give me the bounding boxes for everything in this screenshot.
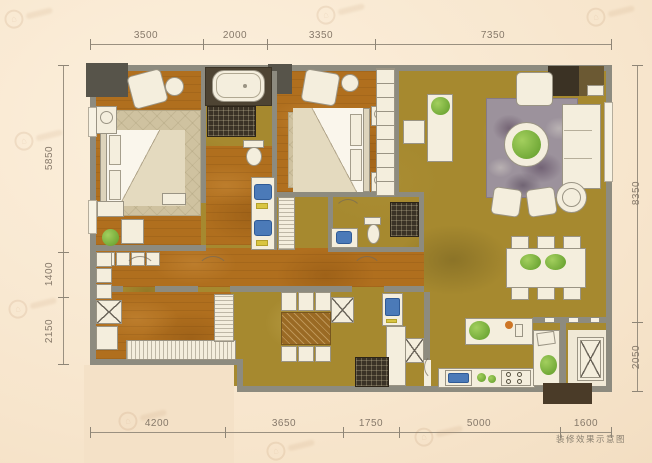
dim-tick: [375, 39, 376, 50]
dim-label-left-3: 2150: [44, 309, 56, 353]
door-arc-laundry: [352, 256, 382, 286]
dim-label-bottom-2: 3650: [264, 418, 304, 430]
dim-label-left-2: 1400: [44, 252, 56, 296]
dim-tick: [58, 65, 69, 66]
round-side-table-inner: [562, 188, 581, 207]
bathtub-drain: [243, 84, 247, 88]
ottoman1-symbol: [165, 77, 184, 96]
dining-chair-5: [537, 287, 555, 300]
dim-tick: [58, 252, 69, 253]
closet-cell-6: [315, 346, 331, 362]
dim-label-bottom-5: 1600: [566, 418, 606, 430]
core-opening-3: [591, 318, 599, 322]
dim-tick: [90, 427, 91, 438]
plant-icon-hall: [431, 97, 450, 115]
hall-side-table: [403, 120, 425, 144]
floorplan-photo: 3500 2000 3350 7350 4200 3650 1750 5000 …: [0, 0, 652, 463]
dining-chair-4: [511, 287, 529, 300]
core-opening-1: [545, 318, 554, 322]
bed2-headboard: [363, 108, 370, 192]
dim-label-right-1: 8350: [631, 171, 643, 215]
dim-tick: [611, 39, 612, 50]
watermark-logo-icon: ⌂: [314, 0, 366, 27]
bedroom1-cabinet-1: [97, 201, 124, 217]
wall-corridor-b: [155, 286, 198, 292]
burner-1: [506, 372, 511, 377]
lounge-chair-1: [490, 186, 523, 218]
bed2-pillow-2: [350, 149, 362, 181]
hall-closet-strip: [278, 197, 295, 250]
shower3-icon: [355, 357, 389, 387]
wall-top: [90, 65, 612, 71]
toilet2-icon: [367, 224, 380, 244]
dim-label-bottom-4: 5000: [459, 418, 499, 430]
shaft-box-3: [96, 300, 122, 324]
dim-label-top-2: 2000: [215, 30, 255, 42]
plant-icon-counter-1: [477, 373, 486, 382]
media-unit: [587, 85, 604, 96]
bed1-pillow-1: [109, 135, 121, 165]
washer-accessory: [386, 319, 397, 323]
shaft-box-2: [405, 338, 424, 363]
closet-cell-5: [298, 346, 314, 362]
closet-cell-1: [281, 292, 297, 311]
door-arc-bedroom3a: [124, 256, 156, 286]
plan-caption: 装修效果示意图: [550, 433, 626, 445]
bathtub-inner: [216, 73, 261, 98]
flue-block-dark: [543, 383, 592, 404]
side-cabinet-1: [96, 252, 112, 267]
watermark-logo-icon: ⌂: [412, 418, 464, 448]
vanity1-accessory-2: [256, 240, 268, 246]
dim-label-top-1: 3500: [126, 30, 166, 42]
bedroom3-cabinet: [96, 326, 118, 350]
bed2-pillow-1: [350, 114, 362, 146]
kitchen-sink-icon: [448, 373, 469, 383]
dim-label-top-3: 3350: [301, 30, 341, 42]
bottom-dimension-line: [90, 432, 612, 433]
wall-bed2-south: [277, 192, 424, 197]
utility-counter: [386, 326, 406, 386]
side-cabinet-2: [96, 268, 112, 283]
elevator-x-icon: [580, 340, 601, 378]
sofa-cushion-line-2: [564, 158, 592, 159]
dim-tick: [632, 322, 643, 323]
burner-4: [517, 379, 522, 384]
wardrobe-column: [376, 68, 395, 196]
plant-icon-counter-2: [488, 375, 496, 383]
dining-table-symbol: [506, 248, 586, 288]
dim-tick: [90, 39, 91, 50]
dim-tick: [632, 391, 643, 392]
daybed-horizontal: [126, 340, 236, 360]
shower2-icon: [390, 202, 419, 237]
window-left-2: [88, 200, 97, 234]
plant-icon-kitchen: [540, 355, 557, 375]
shower1-icon: [207, 106, 256, 137]
watermark-logo-icon: ⌂: [2, 0, 54, 30]
watermark-logo-icon: ⌂: [12, 122, 64, 152]
dim-tick: [203, 39, 204, 50]
dim-tick: [399, 427, 400, 438]
dim-tick: [225, 427, 226, 438]
dim-tick: [58, 364, 69, 365]
plant-icon-dining-2: [545, 254, 566, 270]
sink-icon-2: [254, 220, 272, 236]
closet-cell-3: [315, 292, 331, 311]
dim-tick: [632, 65, 643, 66]
island-accessory: [515, 324, 523, 337]
dim-label-top-4: 7350: [473, 30, 513, 42]
dim-tick: [267, 39, 268, 50]
door-arc-bedroom3b: [197, 256, 229, 286]
watermark-logo-icon: ⌂: [584, 0, 636, 29]
lounge-chair-2: [525, 186, 558, 218]
sofa-symbol: [562, 104, 601, 189]
sofa-cushion-line-1: [564, 130, 592, 131]
door-arc-kitchen: [424, 354, 450, 380]
sink-icon-3: [336, 231, 352, 244]
shaft-box-1: [331, 297, 354, 323]
plant-icon-coffee-table: [512, 130, 541, 159]
side-cabinet-3: [96, 284, 112, 299]
daybed-vertical: [214, 294, 234, 342]
plant-icon-island: [469, 321, 490, 340]
bed1-pillow-2: [109, 170, 121, 200]
wall-bath2-east: [419, 197, 424, 252]
sink-icon-1: [254, 184, 272, 200]
dresser-lamp-icon: [100, 111, 113, 124]
vanity1-accessory-1: [256, 203, 268, 209]
armchair2-symbol: [300, 68, 340, 107]
bed1-bench: [162, 193, 186, 205]
toilet1-icon: [246, 147, 262, 166]
armchair3-symbol: [516, 72, 553, 106]
closet-cell-4: [281, 346, 297, 362]
dim-label-right-2: 2050: [631, 335, 643, 379]
washer-icon: [385, 298, 400, 316]
core-opening-2: [569, 318, 578, 322]
dim-label-bottom-3: 1750: [351, 418, 391, 430]
ottoman2-symbol: [341, 74, 359, 92]
bedroom1-cabinet-2: [121, 219, 144, 244]
wall-corridor-d: [384, 286, 424, 292]
top-dimension-line: [90, 44, 612, 45]
door-arc-bath2: [334, 199, 362, 227]
fruit-bowl-icon: [505, 321, 513, 329]
closet-cell-2: [298, 292, 314, 311]
dim-tick: [58, 297, 69, 298]
dining-chair-6: [563, 287, 581, 300]
closet-hatch-floor: [281, 312, 331, 345]
bed1-headboard: [100, 130, 107, 206]
wall-bed1-south: [96, 245, 206, 251]
burner-2: [517, 372, 522, 377]
cabinet-item: [536, 331, 556, 346]
left-dimension-line: [63, 65, 64, 365]
dim-tick: [343, 427, 344, 438]
plant-icon-dining-1: [520, 254, 541, 270]
wall-core-west: [560, 323, 566, 386]
burner-3: [506, 379, 511, 384]
window-right: [604, 102, 613, 182]
plant-icon-bedroom1: [102, 229, 119, 246]
structural-column-topleft: [86, 63, 128, 97]
watermark-logo-icon: ⌂: [264, 432, 316, 462]
